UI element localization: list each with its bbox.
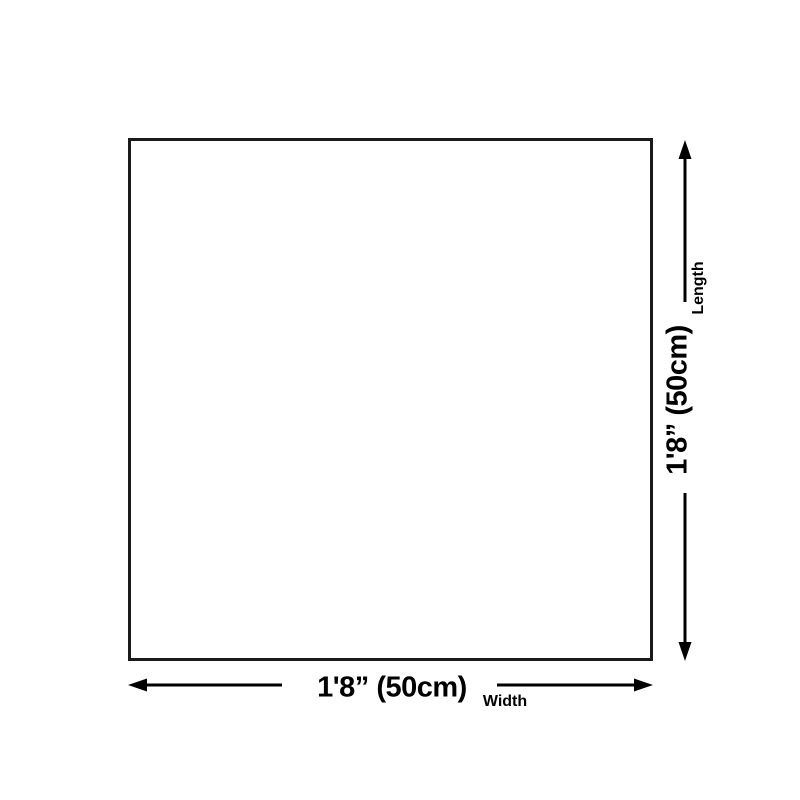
- arrowhead-right-icon: [634, 679, 653, 692]
- arrowhead-left-icon: [128, 679, 147, 692]
- arrowhead-up-icon: [679, 140, 692, 159]
- arrowhead-down-icon: [679, 642, 692, 661]
- length-axis-label: Length: [690, 261, 708, 314]
- width-axis-label: Width: [483, 693, 527, 711]
- length-value-label: 1'8” (50cm): [662, 325, 695, 475]
- width-value-label: 1'8” (50cm): [317, 672, 467, 705]
- product-outline: [128, 138, 653, 661]
- dimension-diagram: 1'8” (50cm) Width 1'8” (50cm) Length: [0, 0, 800, 800]
